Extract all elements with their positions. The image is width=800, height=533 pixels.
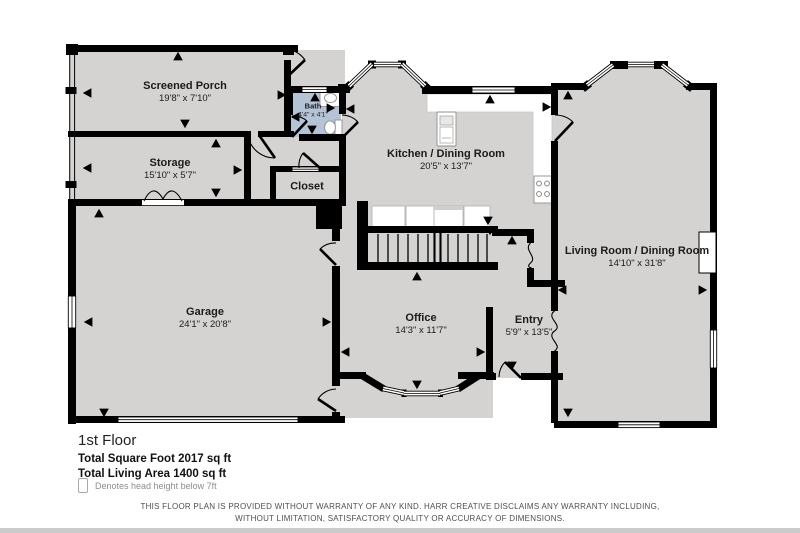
room-label-office: Office 14'3" x 11'7": [395, 312, 446, 336]
room-label-living-dining: Living Room / Dining Room 14'10" x 31'8": [565, 245, 709, 269]
room-label-entry: Entry 5'9" x 13'5": [506, 314, 553, 338]
room-label-storage: Storage 15'10" x 5'7": [144, 157, 196, 181]
head-height-icon: [78, 478, 88, 493]
disclaimer-line-2: WITHOUT LIMITATION, SATISFACTORY QUALITY…: [0, 513, 800, 525]
room-label-garage: Garage 24'1" x 20'8": [179, 306, 231, 330]
legend: Denotes head height below 7ft: [78, 478, 217, 493]
total-square-foot: Total Square Foot 2017 sq ft: [78, 453, 231, 465]
room-label-kitchen-dining: Kitchen / Dining Room 20'5" x 13'7": [387, 148, 505, 172]
disclaimer: THIS FLOOR PLAN IS PROVIDED WITHOUT WARR…: [0, 501, 800, 524]
bottom-border: [0, 528, 800, 533]
room-label-screened-porch: Screened Porch 19'8" x 7'10": [143, 80, 227, 104]
stove-icon: [534, 176, 552, 203]
kitchen-island: [372, 206, 490, 228]
room-label-bath: Bath 4'4" x 4'1": [298, 103, 328, 120]
floor-plan: Screened Porch 19'8" x 7'10" Storage 15'…: [0, 0, 800, 533]
room-label-closet: Closet: [290, 181, 324, 194]
floor-title: 1st Floor: [78, 432, 231, 449]
summary-block: 1st Floor Total Square Foot 2017 sq ft T…: [78, 432, 231, 483]
refrigerator-icon: [437, 112, 456, 146]
legend-note: Denotes head height below 7ft: [95, 481, 217, 491]
room-floors: [70, 50, 712, 424]
toilet-icon: [325, 120, 342, 135]
disclaimer-line-1: THIS FLOOR PLAN IS PROVIDED WITHOUT WARR…: [0, 501, 800, 513]
